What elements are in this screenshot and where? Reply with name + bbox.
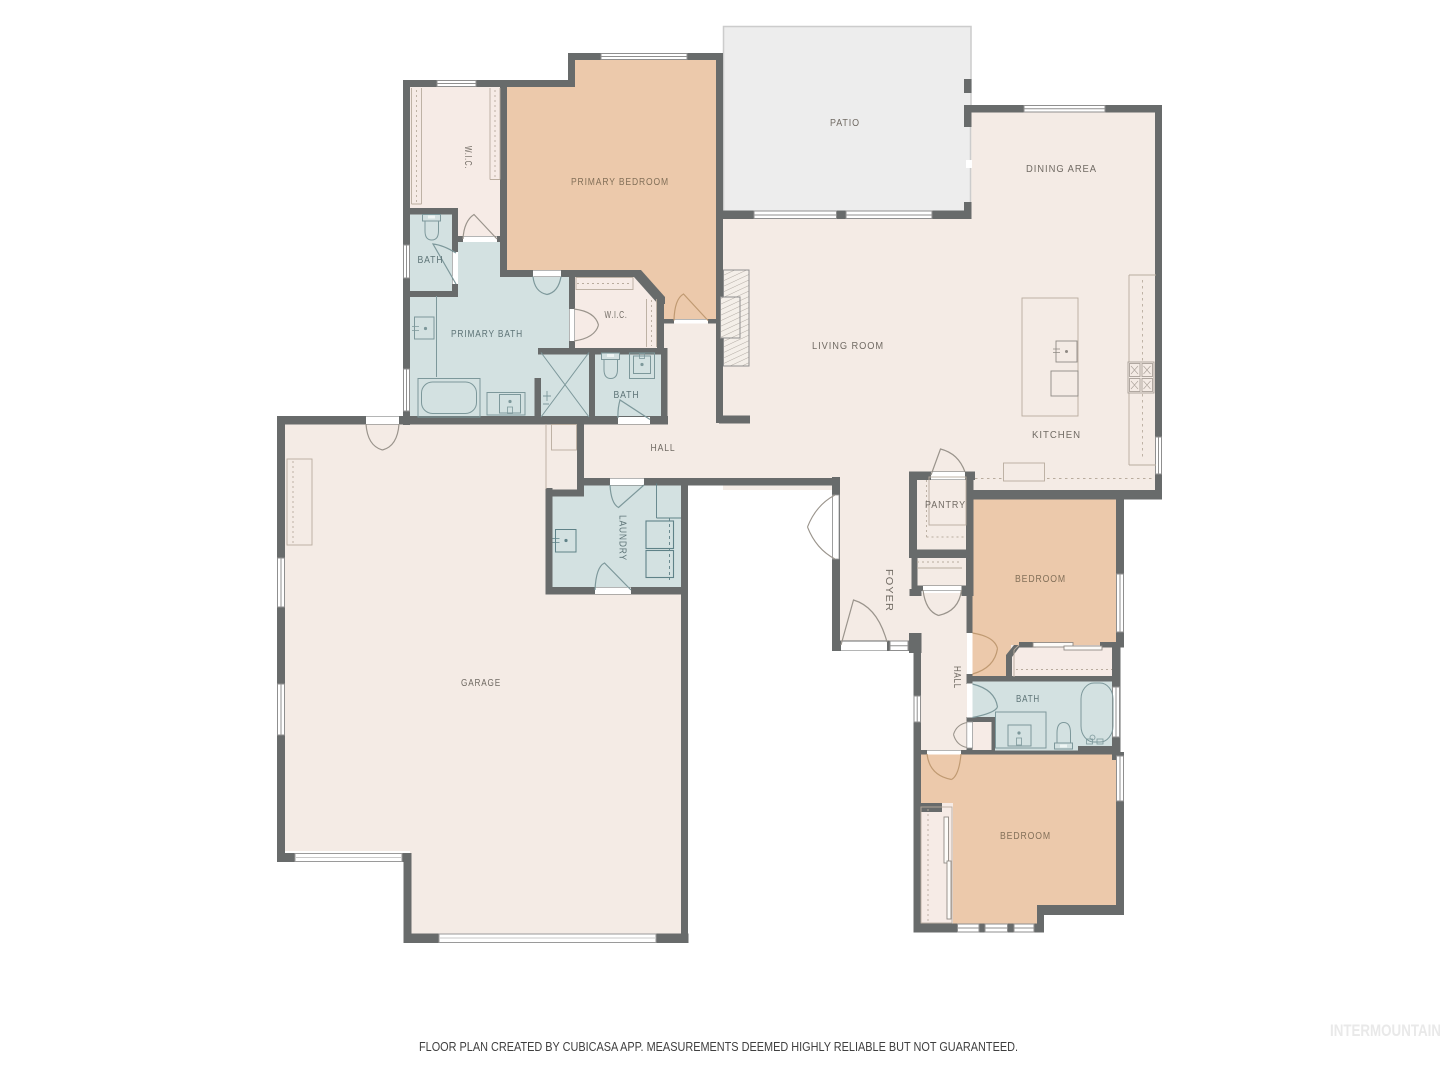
svg-text:BEDROOM: BEDROOM [1015,574,1066,585]
svg-text:HALL: HALL [951,666,962,689]
svg-text:W.I.C.: W.I.C. [462,146,473,169]
svg-text:BATH: BATH [1016,694,1040,705]
svg-text:W.I.C.: W.I.C. [605,310,628,321]
svg-text:FLOOR PLAN CREATED BY CUBICASA: FLOOR PLAN CREATED BY CUBICASA APP. MEAS… [419,1039,1018,1054]
svg-text:BATH: BATH [418,255,444,266]
svg-text:HALL: HALL [651,443,676,454]
svg-text:PRIMARY BEDROOM: PRIMARY BEDROOM [571,177,669,188]
svg-text:LAUNDRY: LAUNDRY [617,515,628,561]
svg-text:BATH: BATH [614,390,640,401]
svg-text:LIVING ROOM: LIVING ROOM [812,341,884,352]
svg-text:PANTRY: PANTRY [925,500,966,511]
svg-text:FOYER: FOYER [883,569,894,612]
svg-text:INTERMOUNTAIN: INTERMOUNTAIN [1330,1021,1440,1040]
svg-text:PATIO: PATIO [830,118,860,129]
svg-text:BEDROOM: BEDROOM [1000,831,1051,842]
svg-text:GARAGE: GARAGE [461,678,501,689]
svg-text:DINING AREA: DINING AREA [1026,164,1097,175]
svg-text:PRIMARY BATH: PRIMARY BATH [451,329,523,340]
svg-text:KITCHEN: KITCHEN [1032,430,1081,441]
